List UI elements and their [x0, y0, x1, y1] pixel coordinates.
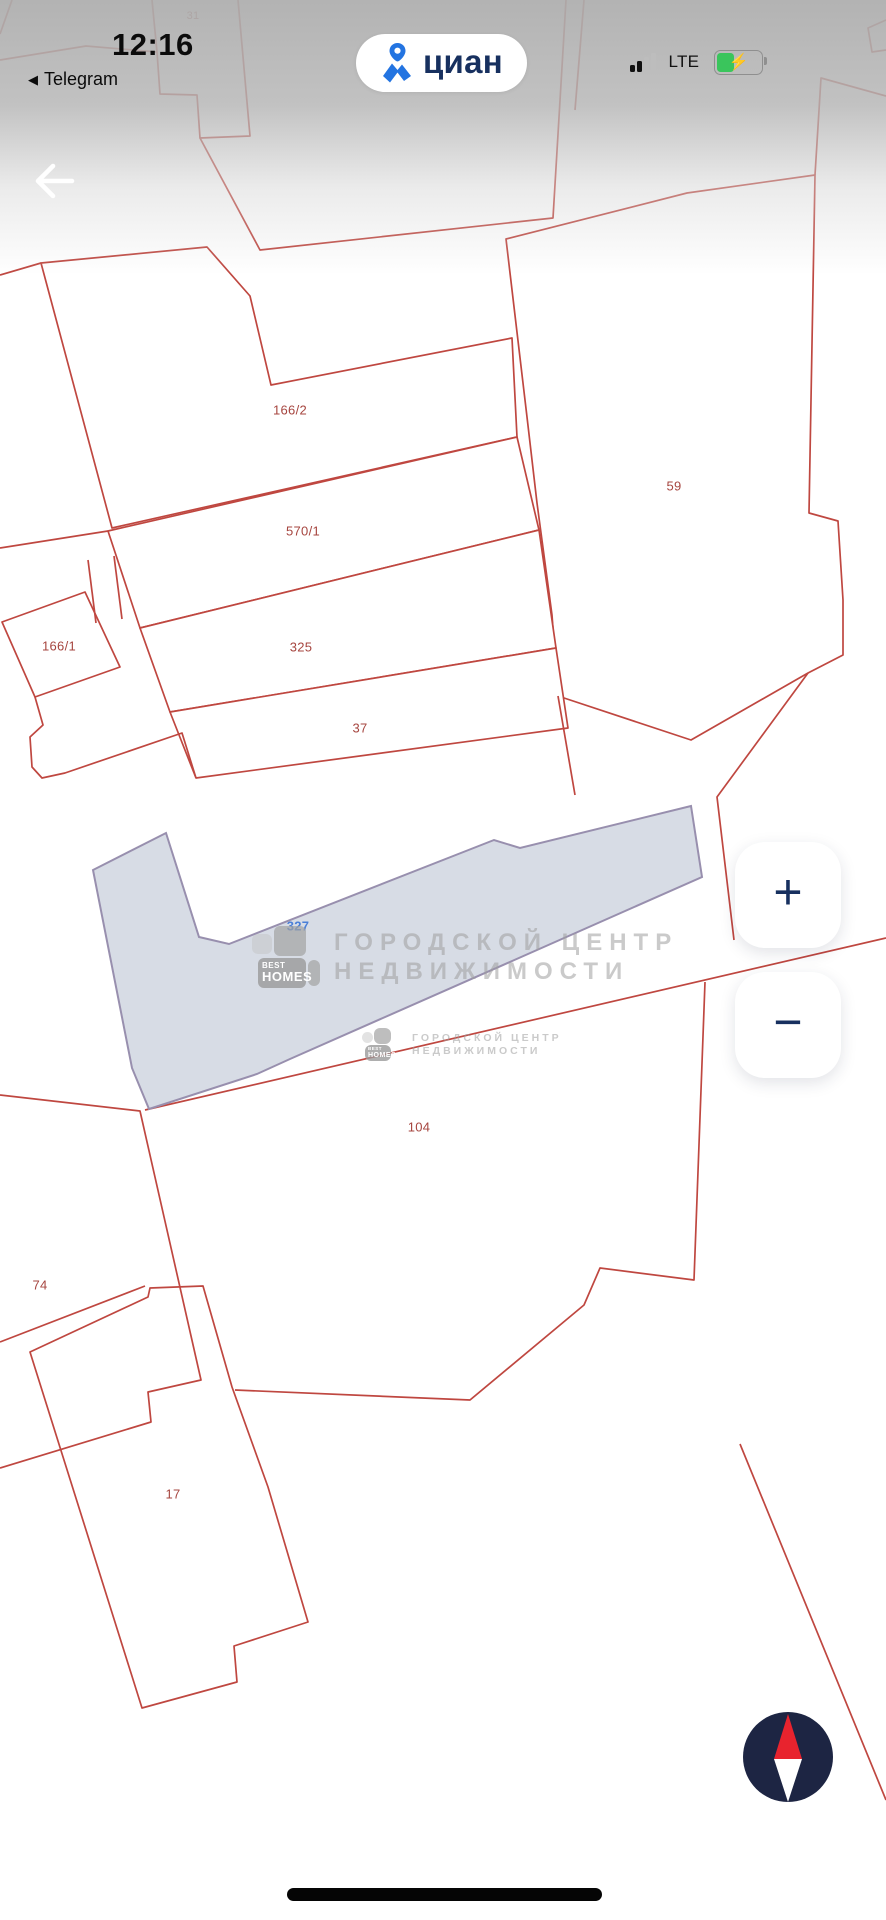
- status-bar: 12:16 ◀ Telegram циан LTE ⚡: [0, 0, 886, 110]
- back-arrow-icon: [26, 156, 78, 204]
- back-app-label: Telegram: [44, 69, 118, 90]
- parcel-label-104: 104: [408, 1120, 431, 1135]
- plus-icon: +: [773, 863, 802, 921]
- cian-app-badge[interactable]: циан: [356, 34, 527, 92]
- home-indicator[interactable]: [287, 1888, 602, 1901]
- back-button[interactable]: [26, 156, 78, 209]
- parcel-label-327: 327: [287, 919, 310, 934]
- battery-charging-icon: ⚡: [714, 50, 763, 75]
- cian-logo-icon: [380, 42, 414, 84]
- phone-screen: 31166/2570/159166/1325373271047417 BEST …: [0, 0, 886, 1920]
- parcel-label-74: 74: [32, 1278, 47, 1293]
- parcel-label-166-1: 166/1: [42, 639, 76, 654]
- zoom-out-button[interactable]: −: [735, 972, 841, 1078]
- parcel-label-570-1: 570/1: [286, 524, 320, 539]
- cian-brand-text: циан: [423, 43, 503, 84]
- parcel-label-325: 325: [290, 640, 313, 655]
- signal-strength-icon: [630, 53, 656, 72]
- cadastral-map[interactable]: [0, 0, 886, 1920]
- back-to-telegram-breadcrumb[interactable]: ◀ Telegram: [28, 69, 118, 90]
- minus-icon: −: [773, 993, 802, 1051]
- parcel-label-17: 17: [165, 1487, 180, 1502]
- zoom-in-button[interactable]: +: [735, 842, 841, 948]
- back-triangle-icon: ◀: [28, 72, 38, 88]
- compass-icon: [742, 1710, 834, 1806]
- parcel-label-166-2: 166/2: [273, 403, 307, 418]
- clock: 12:16: [112, 27, 194, 63]
- network-type-label: LTE: [669, 52, 700, 72]
- selected-parcel-327-shape[interactable]: [93, 806, 702, 1109]
- status-icons: LTE ⚡: [630, 44, 860, 80]
- parcel-label-59: 59: [666, 479, 681, 494]
- parcel-label-37: 37: [352, 721, 367, 736]
- compass-button[interactable]: [742, 1710, 834, 1811]
